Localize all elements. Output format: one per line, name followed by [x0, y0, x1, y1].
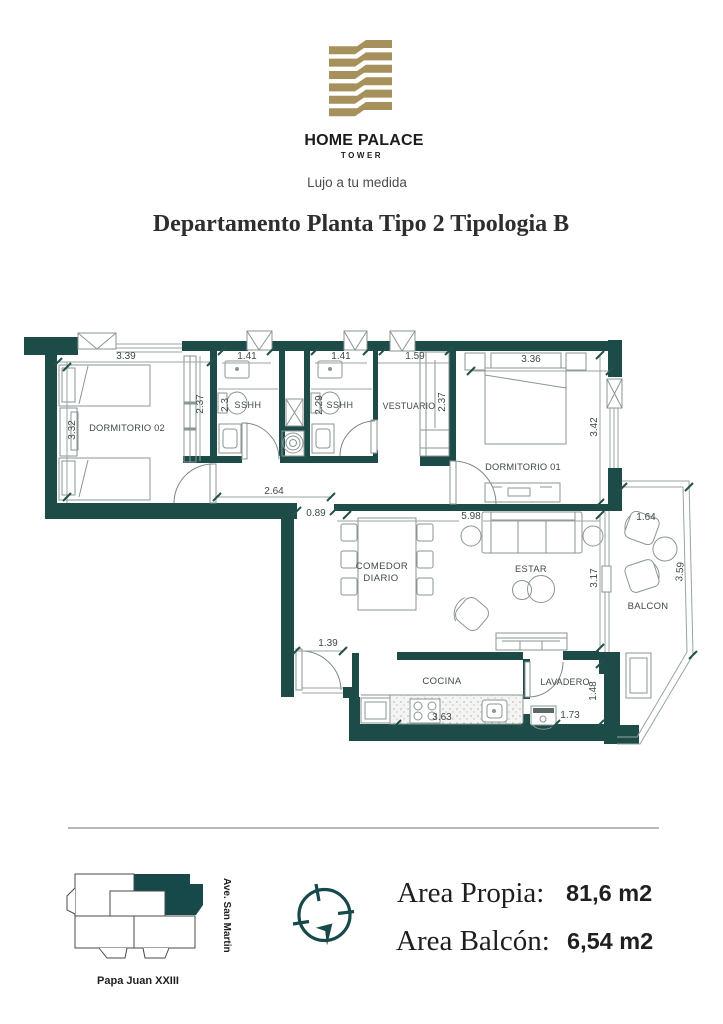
svg-text:1.48: 1.48 [588, 681, 599, 701]
svg-text:3.42: 3.42 [589, 417, 600, 437]
svg-text:COMEDOR: COMEDOR [356, 561, 408, 572]
svg-text:DORMITORIO 02: DORMITORIO 02 [89, 423, 165, 433]
svg-text:2.29: 2.29 [314, 395, 325, 415]
svg-text:1.41: 1.41 [237, 351, 257, 362]
svg-text:1.64: 1.64 [636, 512, 656, 523]
svg-text:1.59: 1.59 [405, 351, 425, 362]
svg-text:2.3: 2.3 [220, 398, 231, 412]
svg-text:3.36: 3.36 [521, 354, 541, 365]
svg-text:81,6 m2: 81,6 m2 [566, 880, 652, 906]
svg-text:Papa Juan XXIII: Papa Juan XXIII [97, 975, 179, 987]
svg-text:Departamento Planta Tipo 2 Tip: Departamento Planta Tipo 2 Tipologia B [153, 211, 569, 237]
svg-text:Area Balcón:: Area Balcón: [396, 925, 550, 957]
svg-text:5.98: 5.98 [461, 511, 481, 522]
svg-text:TOWER: TOWER [341, 151, 383, 160]
svg-text:Ave. San Martin: Ave. San Martin [221, 878, 232, 953]
svg-text:1.39: 1.39 [318, 638, 338, 649]
svg-text:LAVADERO: LAVADERO [540, 677, 589, 687]
svg-text:Area Propia:: Area Propia: [397, 877, 544, 909]
svg-text:2.37: 2.37 [437, 392, 448, 412]
svg-text:HOME PALACE: HOME PALACE [304, 132, 423, 149]
svg-text:3.17: 3.17 [589, 568, 600, 588]
svg-text:1.41: 1.41 [331, 351, 351, 362]
svg-text:2.37: 2.37 [195, 394, 206, 414]
svg-text:2.64: 2.64 [264, 486, 284, 497]
svg-text:3.39: 3.39 [116, 351, 136, 362]
svg-text:3.59: 3.59 [674, 561, 687, 582]
svg-text:SSHH: SSHH [326, 400, 353, 410]
svg-text:DIARIO: DIARIO [363, 573, 398, 584]
svg-text:3.63: 3.63 [432, 712, 452, 723]
svg-text:0.89: 0.89 [306, 508, 326, 519]
svg-text:BALCON: BALCON [628, 601, 669, 612]
svg-text:6,54 m2: 6,54 m2 [567, 928, 653, 954]
svg-text:Lujo a tu medida: Lujo a tu medida [307, 175, 407, 190]
svg-text:DORMITORIO 01: DORMITORIO 01 [485, 462, 561, 472]
svg-text:1.73: 1.73 [560, 710, 580, 721]
svg-text:SSHH: SSHH [234, 400, 261, 410]
svg-text:3.32: 3.32 [67, 420, 78, 440]
svg-text:COCINA: COCINA [422, 676, 462, 687]
svg-text:VESTUARIO: VESTUARIO [383, 401, 436, 411]
svg-text:ESTAR: ESTAR [515, 564, 547, 574]
